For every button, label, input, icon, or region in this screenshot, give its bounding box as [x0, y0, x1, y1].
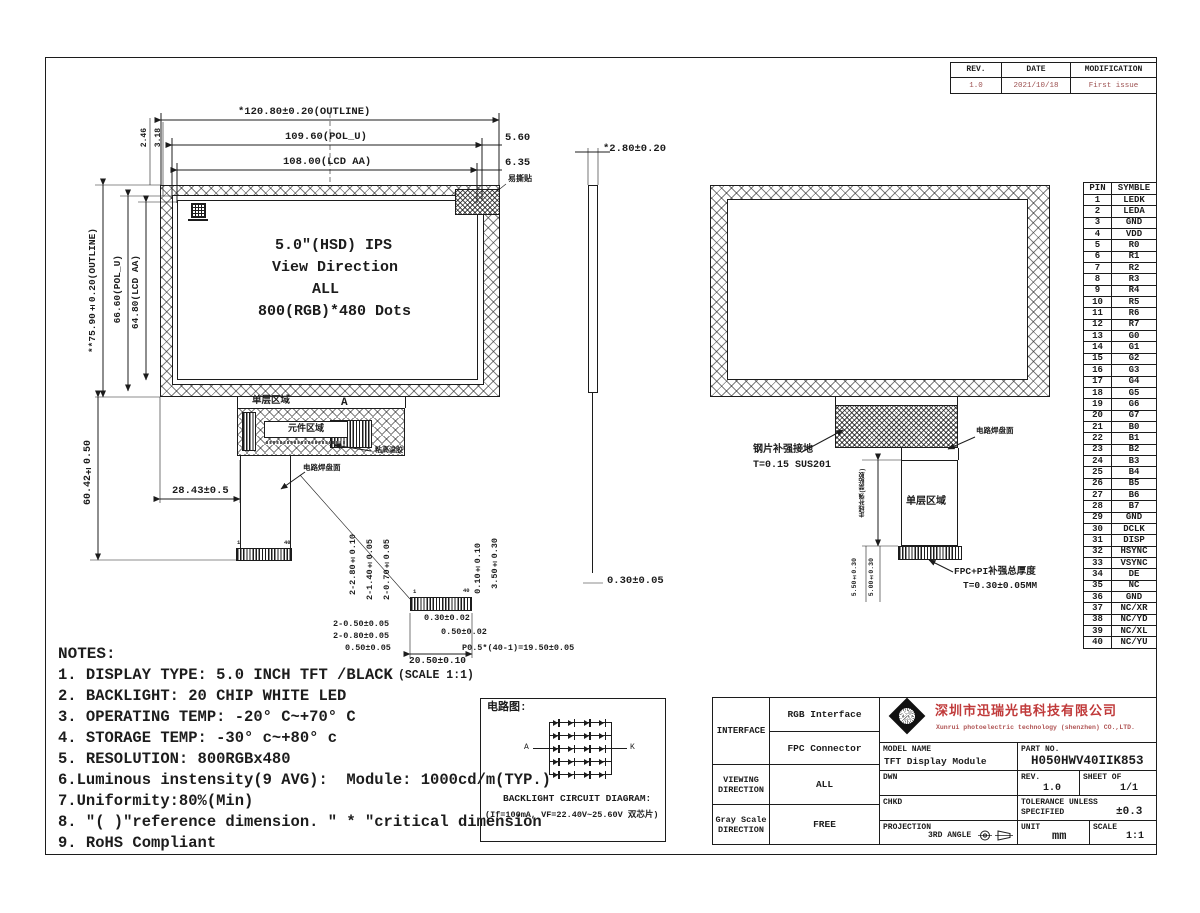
note-line: 1. DISPLAY TYPE: 5.0 INCH TFT /BLACK — [58, 665, 498, 686]
pin-row: 32HSYNC — [1084, 546, 1157, 557]
dim-border-top-2: 3.18 — [155, 128, 163, 147]
notes-block: NOTES: 1. DISPLAY TYPE: 5.0 INCH TFT /BL… — [58, 644, 498, 854]
pad-side-label-back: 电路焊盘面 — [976, 428, 1014, 436]
note-line: 5. RESOLUTION: 800RGBx480 — [58, 749, 498, 770]
led-icon — [553, 771, 561, 779]
pin-row: 38NC/YD — [1084, 614, 1157, 625]
pin-row: 1LEDK — [1084, 195, 1157, 206]
dwn-cell: DWN — [879, 770, 1018, 796]
note-line: 7.Uniformity:80%(Min) — [58, 791, 498, 812]
display-spec-line4: 800(RGB)*480 Dots — [258, 304, 411, 320]
steel-label-1: 钢片补强接地 — [753, 446, 813, 457]
dim-fpc-height: 60.42±0.50 — [84, 440, 94, 505]
model-name-cell: MODEL NAME TFT Display Module — [879, 742, 1018, 771]
dim-lcd-width: 108.00(LCD AA) — [283, 157, 371, 168]
note-line: 4. STORAGE TEMP: -30° c~+80° c — [58, 728, 498, 749]
side-fpc-dim: 0.30±0.05 — [607, 576, 664, 587]
fpc-connector-detail — [410, 597, 472, 611]
gray-scale-value: FREE — [769, 804, 880, 845]
pin-row: 3GND — [1084, 217, 1157, 228]
pin-row: 9R4 — [1084, 285, 1157, 296]
led-icon — [568, 719, 576, 727]
led-icon — [553, 758, 561, 766]
note-line: 2. BACKLIGHT: 20 CHIP WHITE LED — [58, 686, 498, 707]
circuit-caption-2: (If=100mA, VF=22.40V~25.60V 双芯片) — [485, 811, 658, 820]
part-no-cell: PART NO. H050HWV40IIK853 — [1017, 742, 1157, 771]
pin-row: 5R0 — [1084, 240, 1157, 251]
side-profile — [588, 185, 598, 393]
adhesive-label: 粘高温胶 — [375, 448, 403, 456]
rev-cell-value: 1.0 — [1043, 784, 1061, 795]
date-value: 2021/10/18 — [1002, 78, 1070, 93]
led-icon — [599, 758, 607, 766]
detail-dim-rot1: 2-2.80±0.10 — [349, 534, 358, 595]
led-icon — [584, 758, 592, 766]
notes-title: NOTES: — [58, 644, 498, 665]
tolerance-label-2: SPECIFIED — [1021, 809, 1064, 818]
dim-pol-height: 66.60(POL_U) — [113, 255, 123, 323]
display-spec-line1: 5.0″(HSD) IPS — [275, 238, 392, 254]
pin-row: 25B4 — [1084, 467, 1157, 478]
modification-header: MODIFICATION — [1071, 63, 1156, 77]
pin-row: 4VDD — [1084, 229, 1157, 240]
interface-value-2: FPC Connector — [769, 731, 880, 765]
dim-pol-width: 109.60(POL_U) — [285, 132, 367, 143]
engineering-drawing-sheet: REV. DATE MODIFICATION 1.0 2021/10/18 Fi… — [0, 0, 1200, 913]
pin-row: 21B0 — [1084, 421, 1157, 432]
led-icon — [553, 732, 561, 740]
steel-label-2: T=0.15 SUS201 — [753, 461, 831, 472]
rev-value: 1.0 — [951, 78, 1001, 93]
led-icon — [599, 771, 607, 779]
pin-row: 29GND — [1084, 512, 1157, 523]
pin-row: 30DCLK — [1084, 523, 1157, 534]
fpc-left-connector-mark — [242, 412, 256, 451]
fpc-pi-label-1: FPC+PI补强总厚度 — [954, 567, 1036, 577]
fpc-connector-back — [898, 546, 962, 560]
detail-dim-rot4: 0.10±0.10 — [474, 543, 483, 594]
pin-row: 19G6 — [1084, 399, 1157, 410]
pad-side-label-front: 电路焊盘面 — [303, 465, 341, 473]
symbol-col-header: SYMBLE — [1112, 183, 1157, 195]
pin-row: 36GND — [1084, 592, 1157, 603]
pin-row: 35NC — [1084, 580, 1157, 591]
gray-scale-label: Gray ScaleDIRECTION — [712, 804, 770, 845]
led-icon — [568, 732, 576, 740]
date-header: DATE — [1002, 63, 1070, 77]
pin-row: 40NC/YU — [1084, 637, 1157, 648]
single-layer-label-front: 单层区域 — [252, 396, 290, 406]
note-line: 6.Luminous instensity(9 AVG): Module: 10… — [58, 770, 498, 791]
cathode-label: K — [630, 744, 635, 753]
pin-row: 8R3 — [1084, 274, 1157, 285]
pin-row: 10R5 — [1084, 297, 1157, 308]
single-layer-label-back: 单层区域 — [906, 498, 946, 509]
led-icon — [584, 732, 592, 740]
pin-row: 16G3 — [1084, 365, 1157, 376]
pin-row: 23B2 — [1084, 444, 1157, 455]
pin-row: 20G7 — [1084, 410, 1157, 421]
detail-pin1: 1 — [413, 589, 416, 595]
viewing-direction-value: ALL — [769, 764, 880, 805]
pin-row: 24B3 — [1084, 455, 1157, 466]
dim-border-top-1: 2.46 — [141, 128, 149, 147]
detail-dim-h5: 0.50±0.02 — [441, 628, 487, 637]
viewing-direction-label: VIEWINGDIRECTION — [712, 764, 770, 805]
led-icon — [568, 745, 576, 753]
chkd-cell: CHKD — [879, 795, 1018, 821]
fpc-pi-label-2: T=0.30±0.05MM — [963, 581, 1037, 591]
pin1-mark-front: 1 — [237, 540, 240, 546]
rev-header: REV. — [951, 63, 1001, 77]
pin-row: 39NC/XL — [1084, 626, 1157, 637]
tiny-fpc-code-mark — [266, 441, 346, 444]
pin40-mark-front: 40 — [284, 540, 291, 546]
pin-row: 34DE — [1084, 569, 1157, 580]
easy-tear-sticker — [455, 189, 500, 215]
title-block: INTERFACE RGB Interface FPC Connector VI… — [712, 697, 1157, 845]
pin-col-header: PIN — [1084, 183, 1112, 195]
unit-cell: UNIT mm — [1017, 820, 1090, 845]
back-dim-v1: 5.50±0.30 — [852, 558, 859, 596]
rev-cell: REV. 1.0 — [1017, 770, 1080, 796]
tolerance-cell: TOLERANCE UNLESS SPECIFIED ±0.3 — [1017, 795, 1157, 821]
pin-row: 12R7 — [1084, 319, 1157, 330]
pin-row: 17G4 — [1084, 376, 1157, 387]
led-icon — [568, 758, 576, 766]
led-icon — [599, 719, 607, 727]
detail-dim-rot5: 3.50±0.30 — [491, 538, 500, 589]
dim-right-top: 5.60 — [505, 133, 530, 144]
pin-table: PIN SYMBLE 1LEDK 2LEDA 3GND 4VDD 5R0 6R1… — [1083, 182, 1157, 649]
led-icon — [568, 771, 576, 779]
scale-cell: SCALE 1:1 — [1089, 820, 1157, 845]
display-spec-line3: ALL — [312, 282, 339, 298]
detail-dim-h1: 2-0.50±0.05 — [333, 620, 389, 629]
model-name-value: TFT Display Module — [884, 757, 987, 767]
note-line: 8. ″( )″reference dimension. ″ * ″critic… — [58, 812, 498, 833]
pin-row: 2LEDA — [1084, 206, 1157, 217]
circuit-caption-1: BACKLIGHT CIRCUIT DIAGRAM: — [503, 794, 651, 804]
pin-row: 13G0 — [1084, 331, 1157, 342]
easy-tear-label: 易撕贴 — [508, 176, 532, 185]
pin-row: 14G1 — [1084, 342, 1157, 353]
detail-dim-rot2: 2-1.40±0.05 — [366, 539, 375, 600]
unit-value: mm — [1052, 830, 1066, 843]
third-angle-symbol-icon — [978, 829, 1014, 842]
display-spec-line2: View Direction — [272, 260, 398, 276]
led-icon — [553, 719, 561, 727]
note-line: 9. RoHS Compliant — [58, 833, 498, 854]
dim-right-bottom: 6.35 — [505, 158, 530, 169]
detail-dim-rot3: 2-0.70±0.05 — [383, 539, 392, 600]
anode-label: A — [524, 744, 529, 753]
steel-reinforcement — [835, 405, 958, 448]
back-trace-label: 走线补强(禁贴胶) — [860, 468, 866, 517]
component-area-label: 元件区域 — [265, 422, 347, 437]
part-no-value: H050HWV40IIK853 — [1031, 755, 1144, 769]
pin-row: 37NC/XR — [1084, 603, 1157, 614]
fpc-connector-front — [236, 548, 292, 561]
dim-lcd-height: 64.80(LCD AA) — [131, 255, 141, 329]
dim-fpc-offset: 28.43±0.5 — [172, 486, 229, 497]
company-cell: 深圳市迅瑞光电科技有限公司 Xunrui photoelectric techn… — [879, 697, 1157, 743]
company-logo-icon — [889, 698, 926, 735]
modification-value: First issue — [1071, 78, 1156, 93]
pin-row: 28B7 — [1084, 501, 1157, 512]
interface-value-1: RGB Interface — [769, 697, 880, 732]
pin-row: 18G5 — [1084, 387, 1157, 398]
led-icon — [599, 732, 607, 740]
projection-cell: PROJECTION 3RD ANGLE — [879, 820, 1018, 845]
company-name-en: Xunrui photoelectric technology (shenzhe… — [936, 724, 1135, 731]
pin-row: 31DISP — [1084, 535, 1157, 546]
detail-pin40: 40 — [463, 588, 470, 594]
pin-row: 11R6 — [1084, 308, 1157, 319]
pin-row: 22B1 — [1084, 433, 1157, 444]
pin-row: 33VSYNC — [1084, 558, 1157, 569]
led-icon — [584, 745, 592, 753]
interface-label: INTERFACE — [712, 697, 770, 765]
back-dim-v2: 5.00±0.30 — [869, 558, 876, 596]
detail-dim-h4: 0.30±0.02 — [424, 614, 470, 623]
note-line: 3. OPERATING TEMP: -20° C~+70° C — [58, 707, 498, 728]
sheet-cell-value: 1/1 — [1120, 784, 1138, 795]
led-icon — [553, 745, 561, 753]
circuit-title: 电路图: — [487, 703, 527, 715]
projection-value: 3RD ANGLE — [928, 832, 971, 841]
detail-dim-h2: 2-0.80±0.05 — [333, 632, 389, 641]
dim-outline-width: *120.80±0.20(OUTLINE) — [238, 107, 370, 118]
back-inner-area — [727, 199, 1028, 380]
company-name-cn: 深圳市迅瑞光电科技有限公司 — [935, 705, 1117, 719]
scale-value: 1:1 — [1126, 832, 1144, 843]
pin-row: 7R2 — [1084, 263, 1157, 274]
led-icon — [584, 719, 592, 727]
led-icon — [584, 771, 592, 779]
pin-row: 6R1 — [1084, 251, 1157, 262]
pin-row: 15G2 — [1084, 353, 1157, 364]
side-thickness-dim: *2.80±0.20 — [603, 144, 666, 155]
tolerance-value: ±0.3 — [1116, 807, 1142, 819]
sheet-cell: SHEET OF 1/1 — [1079, 770, 1157, 796]
led-icon — [599, 745, 607, 753]
pin-row: 26B5 — [1084, 478, 1157, 489]
dim-outline-height: **75.90±0.20(OUTLINE) — [88, 228, 98, 353]
pin-row: 27B6 — [1084, 489, 1157, 500]
orientation-mark-icon — [191, 203, 206, 218]
